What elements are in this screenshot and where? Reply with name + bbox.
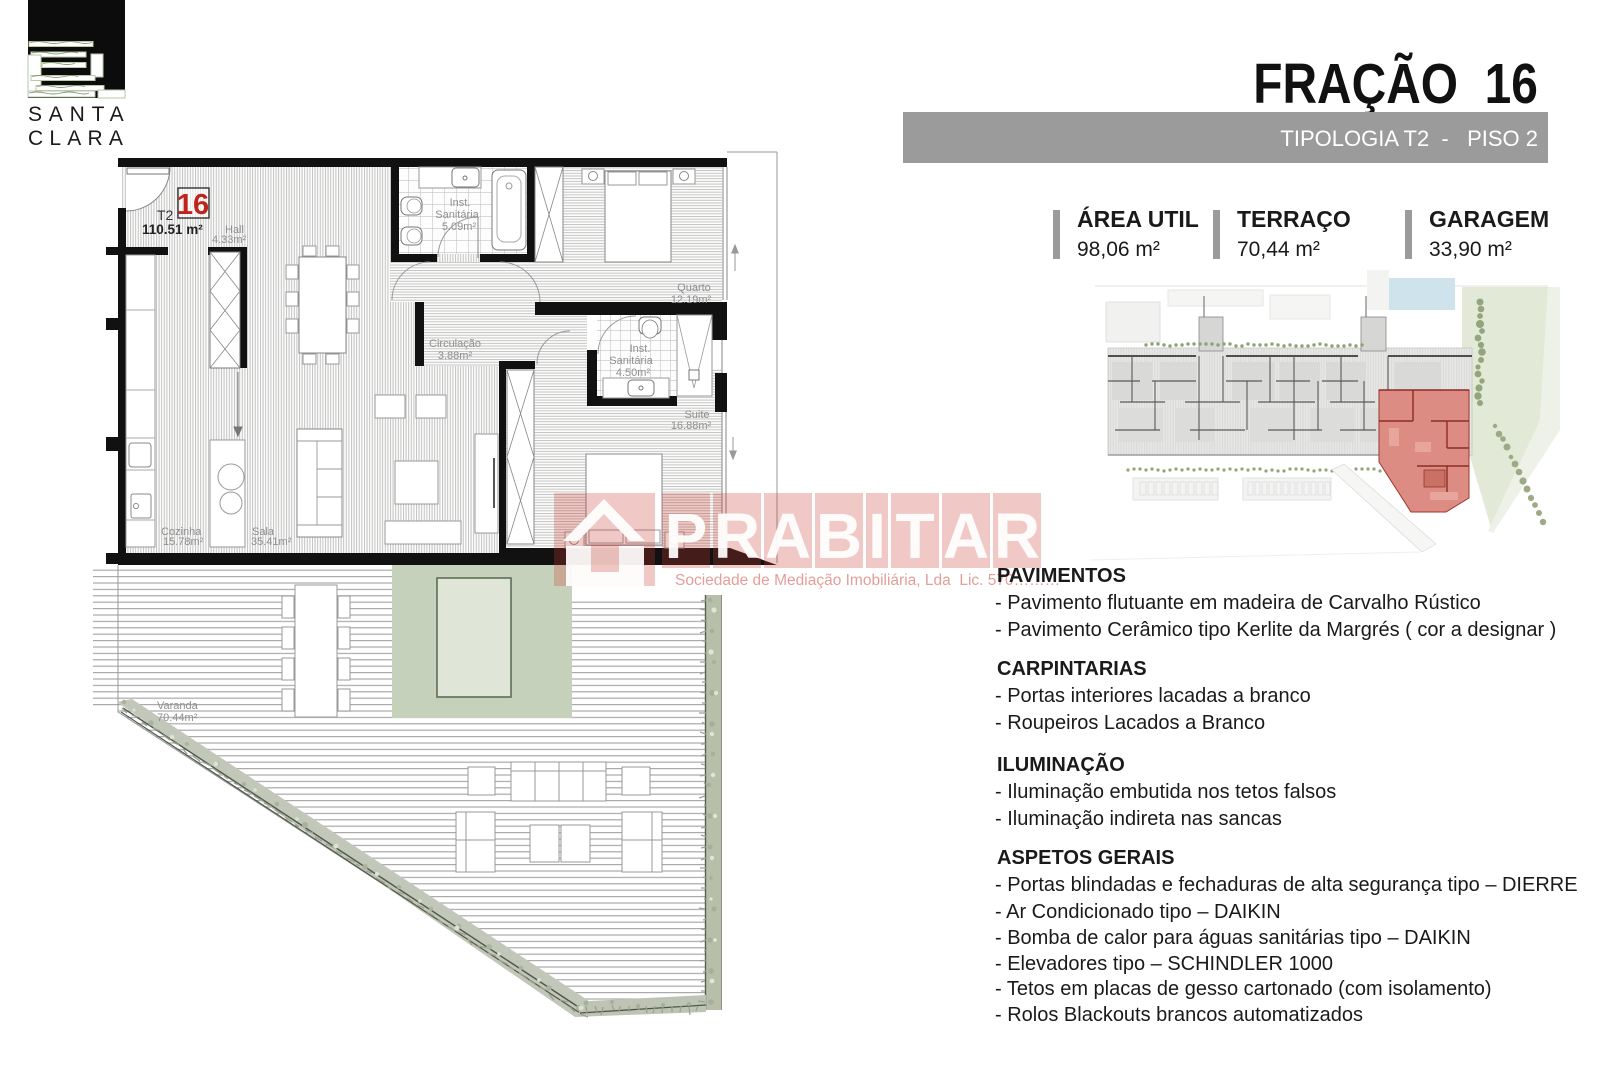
svg-text:Inst.: Inst. <box>630 343 651 355</box>
svg-text:Circulação: Circulação <box>429 338 481 350</box>
svg-text:3.88m²: 3.88m² <box>438 350 473 362</box>
svg-text:5.09m²: 5.09m² <box>442 221 477 233</box>
svg-text:A: A <box>943 500 989 572</box>
svg-text:T2: T2 <box>157 207 174 223</box>
svg-text:R: R <box>714 500 760 572</box>
svg-text:16.88m²: 16.88m² <box>671 420 712 432</box>
svg-text:R: R <box>994 500 1040 572</box>
svg-text:4.50m²: 4.50m² <box>616 367 651 379</box>
svg-text:70.44m²: 70.44m² <box>157 712 198 724</box>
svg-text:4.33m²: 4.33m² <box>212 234 247 246</box>
svg-text:110.51 m²: 110.51 m² <box>142 222 203 237</box>
svg-text:P: P <box>665 500 708 572</box>
svg-text:Varanda: Varanda <box>157 700 199 712</box>
svg-text:16: 16 <box>177 189 209 221</box>
svg-text:35.41m²: 35.41m² <box>251 536 292 548</box>
svg-text:12.19m²: 12.19m² <box>671 294 712 306</box>
svg-text:A: A <box>765 500 811 572</box>
svg-text:I: I <box>868 500 886 572</box>
svg-text:T: T <box>895 500 934 572</box>
svg-text:15.78m²: 15.78m² <box>163 536 204 548</box>
svg-text:Sanitária: Sanitária <box>609 355 653 367</box>
svg-text:Quarto: Quarto <box>677 282 711 294</box>
svg-text:B: B <box>816 500 862 572</box>
svg-text:Inst.: Inst. <box>450 197 471 209</box>
svg-text:Sanitária: Sanitária <box>435 209 479 221</box>
